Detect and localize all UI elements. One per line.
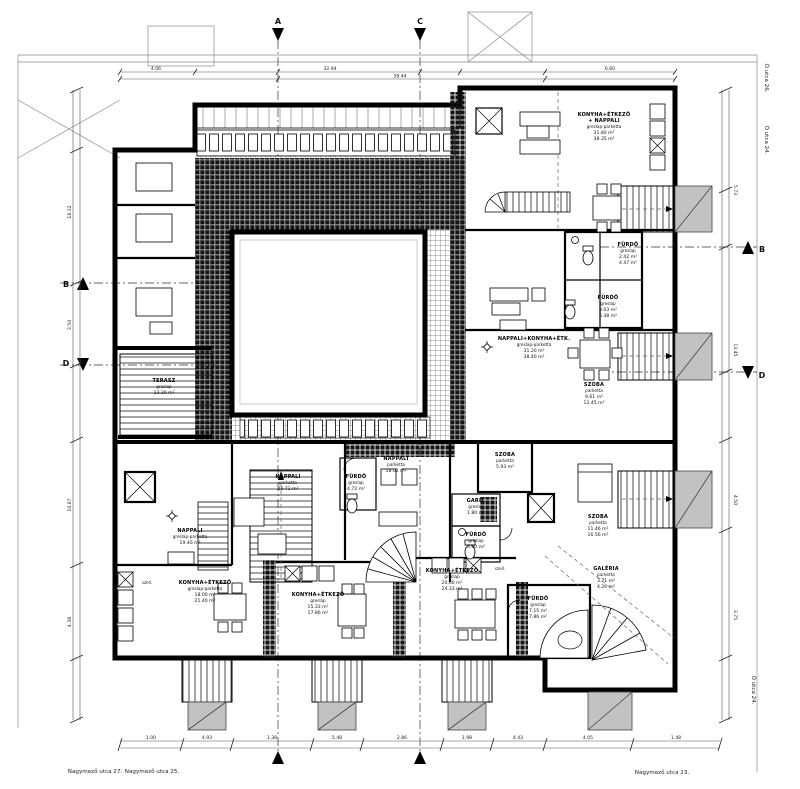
- svg-text:KONYHA+ÉTKEZŐ: KONYHA+ÉTKEZŐ: [426, 566, 479, 574]
- room-label-gard: GARD. greslap 1.80 m²: [467, 498, 486, 516]
- stair-right-1: [618, 186, 675, 232]
- louver-row-top: [197, 130, 455, 156]
- section-marker-a: A: [272, 17, 284, 41]
- dim-value: 1.98: [462, 735, 472, 741]
- corner-bathtub: [540, 610, 588, 658]
- room-label-nappali-konyha: NAPPALI+KONYHA+ÉTK. greslap-parketta 31.…: [498, 334, 570, 360]
- section-marker-d-right: D: [742, 366, 766, 380]
- svg-text:2.42 m²: 2.42 m²: [619, 254, 637, 260]
- section-marker-d-left: D: [63, 358, 89, 371]
- svg-text:31.20 m²: 31.20 m²: [524, 348, 545, 354]
- svg-text:parketta: parketta: [597, 572, 615, 577]
- street-label-o-utca-24-lower: Ó utca 24.: [750, 675, 757, 704]
- svg-text:FÜRDŐ: FÜRDŐ: [346, 473, 367, 480]
- dim-value: 5.48: [332, 735, 342, 741]
- dim-value: 3.75: [732, 610, 738, 620]
- svg-text:KONYHA+ÉTKEZŐ: KONYHA+ÉTKEZŐ: [578, 110, 631, 118]
- neighbour-roof-plan: [148, 26, 214, 66]
- svg-text:5.38 m²: 5.38 m²: [599, 313, 617, 319]
- svg-text:3.71 m²: 3.71 m²: [597, 578, 615, 584]
- room-label-furdo1: FÜRDŐ greslap 2.42 m² 4.47 m²: [618, 241, 639, 266]
- svg-text:7.15 m²: 7.15 m²: [529, 608, 547, 614]
- party-wall: [516, 582, 528, 658]
- stair-top-fan: [485, 192, 505, 212]
- section-label-c: C: [417, 17, 423, 26]
- svg-text:parketta: parketta: [279, 480, 297, 485]
- survey-point: [481, 341, 493, 353]
- dim-value: 1.00: [146, 735, 156, 741]
- toilet: [347, 494, 357, 513]
- svg-text:9.61 m²: 9.61 m²: [585, 394, 603, 400]
- kitchen-counter: [285, 566, 334, 581]
- dimension-chain-right: 5.73 13.45 4.50 3.75: [719, 87, 738, 723]
- room-label-furdo4: FÜRDŐ greslap 7.15 m² 7.86 m²: [528, 595, 549, 620]
- elevator-shaft: [528, 494, 554, 522]
- svg-text:greslap-parketta: greslap-parketta: [188, 586, 223, 591]
- dim-value: 4.43: [513, 735, 523, 741]
- room-label-furdo3: FÜRDŐ greslap 3.60 m²: [466, 531, 487, 550]
- svg-text:parketta: parketta: [387, 462, 405, 467]
- svg-text:26.72 m²: 26.72 m²: [278, 486, 299, 492]
- svg-text:FÜRDŐ: FÜRDŐ: [528, 595, 549, 602]
- dining-table: [593, 184, 621, 232]
- svg-text:greslap: greslap: [468, 538, 484, 543]
- svg-text:GALÉRIA: GALÉRIA: [593, 564, 619, 572]
- room-label-furdo5: FÜRDŐ greslap 4.72 m²: [346, 473, 367, 492]
- svg-text:greslap: greslap: [444, 574, 460, 579]
- dim-value: 6.60: [605, 66, 615, 72]
- lightwell-3: [442, 660, 492, 702]
- svg-text:KONYHA+ÉTKEZŐ: KONYHA+ÉTKEZŐ: [179, 578, 232, 586]
- svg-text:greslap-parketta: greslap-parketta: [587, 124, 622, 129]
- dim-value: 4.50: [732, 495, 738, 505]
- section-label-a: A: [275, 17, 282, 26]
- svg-text:16.56 m²: 16.56 m²: [588, 532, 609, 538]
- dim-value: 16.32: [67, 205, 73, 218]
- svg-text:1.80 m²: 1.80 m²: [467, 510, 485, 516]
- room-label-szoba1: SZOBA parketta 9.61 m² 12.45 m²: [584, 382, 605, 406]
- coffee-table: [527, 126, 549, 138]
- svg-text:4.47 m²: 4.47 m²: [619, 260, 637, 266]
- armchair: [532, 288, 545, 301]
- lightwell-1: [182, 660, 232, 702]
- bed: [136, 214, 172, 242]
- svg-text:NAPPALI+KONYHA+ÉTK.: NAPPALI+KONYHA+ÉTK.: [498, 334, 570, 342]
- svg-text:18.02 m²: 18.02 m²: [386, 468, 407, 474]
- survey-point: [166, 510, 178, 522]
- svg-text:D: D: [759, 371, 766, 380]
- svg-text:parketta: parketta: [585, 388, 603, 393]
- room-label-konyha3: KONYHA+ÉTKEZŐ greslap 20.60 m² 24.33 m²: [426, 566, 479, 592]
- svg-text:38.35 m²: 38.35 m²: [594, 136, 615, 142]
- svg-text:38.40 m²: 38.40 m²: [524, 354, 545, 360]
- svg-text:D: D: [63, 359, 70, 368]
- section-marker-b-right: B: [742, 241, 765, 254]
- dim-value: 1.48: [671, 735, 681, 741]
- sofa: [490, 288, 528, 301]
- room-label-nappali1: NAPPALI parketta 18.02 m²: [383, 456, 408, 474]
- svg-text:5.93 m²: 5.93 m²: [496, 464, 514, 470]
- room-label-szoba2: SZOBA parketta 5.93 m²: [495, 452, 515, 470]
- stair-fan-center: [366, 532, 416, 582]
- desk: [150, 322, 172, 334]
- svg-text:23.30 m²: 23.30 m²: [154, 390, 175, 396]
- dim-value: 4.05: [583, 735, 593, 741]
- stair-top-run: [505, 192, 570, 212]
- svg-text:3.60 m²: 3.60 m²: [467, 544, 485, 550]
- section-marker-c-bottom: [414, 751, 426, 764]
- sofa: [520, 140, 560, 154]
- dim-value: 1.38: [267, 735, 277, 741]
- sofa: [168, 552, 194, 564]
- neighbour-roof-lines: [18, 100, 120, 158]
- svg-text:greslap: greslap: [310, 598, 326, 603]
- dining-table: [455, 589, 496, 640]
- svg-text:17.86 m²: 17.86 m²: [308, 610, 329, 616]
- sofa: [379, 512, 417, 526]
- toilet: [583, 246, 593, 265]
- svg-text:greslap: greslap: [156, 384, 172, 389]
- louver-row-bottom: [240, 417, 430, 438]
- street-label-nagymezo-23: Nagymező utca 23.: [635, 770, 690, 776]
- dim-value: 4.93: [202, 735, 212, 741]
- vent-label: szell.: [142, 580, 152, 585]
- svg-text:3.03 m²: 3.03 m²: [599, 307, 617, 313]
- svg-text:FÜRDŐ: FÜRDŐ: [618, 241, 639, 248]
- svg-text:20.60 m²: 20.60 m²: [442, 580, 463, 586]
- svg-text:21.40 m²: 21.40 m²: [195, 598, 216, 604]
- svg-text:greslap: greslap: [468, 504, 484, 509]
- dim-value: 38.44: [393, 74, 406, 80]
- dim-value: 5.73: [732, 185, 738, 195]
- svg-text:greslap-parketta: greslap-parketta: [517, 342, 552, 347]
- svg-text:FÜRDŐ: FÜRDŐ: [466, 531, 487, 538]
- street-label-o-utca-24: Ó utca 24.: [763, 125, 770, 154]
- stair-right-2: [618, 333, 675, 380]
- toilet: [565, 300, 575, 319]
- section-marker-c: C: [414, 17, 426, 41]
- svg-text:FÜRDŐ: FÜRDŐ: [598, 294, 619, 301]
- svg-text:greslap-parketta: greslap-parketta: [173, 534, 208, 539]
- bed: [136, 163, 172, 191]
- vent-label: szell.: [495, 566, 505, 571]
- bed: [578, 464, 612, 502]
- svg-text:greslap: greslap: [348, 480, 364, 485]
- svg-text:KONYHA+ÉTKEZŐ: KONYHA+ÉTKEZŐ: [292, 590, 345, 598]
- svg-text:18.00 m²: 18.00 m²: [195, 592, 216, 598]
- svg-text:greslap: greslap: [530, 602, 546, 607]
- dim-value: 2.86: [397, 735, 407, 741]
- washbasin: [572, 237, 579, 244]
- sofa: [492, 303, 520, 315]
- bed: [234, 498, 264, 526]
- sofa: [258, 534, 286, 554]
- dim-value: 32.94: [323, 66, 336, 72]
- floor-plan-drawing: A C B D B D 4.06 32.94 6.60 3: [0, 0, 800, 789]
- dimension-chain-top: 4.06 32.94 6.60 38.44: [118, 66, 677, 82]
- svg-text:11.46 m²: 11.46 m²: [588, 526, 609, 532]
- svg-text:greslap: greslap: [600, 301, 616, 306]
- dim-value: 3.50: [67, 320, 73, 330]
- section-marker-a-bottom: [272, 751, 284, 764]
- street-label-o-utca-26: Ó utca 26.: [763, 63, 770, 92]
- room-label-furdo2: FÜRDŐ greslap 3.03 m² 5.38 m²: [598, 294, 619, 319]
- dim-value: 10.67: [67, 498, 73, 511]
- svg-text:31.80 m²: 31.80 m²: [594, 130, 615, 136]
- svg-text:15.33 m²: 15.33 m²: [308, 604, 329, 610]
- room-label-konyha-nappali: KONYHA+ÉTKEZŐ + NAPPALI greslap-parketta…: [578, 110, 631, 142]
- lightwell-2: [312, 660, 362, 702]
- bed: [136, 288, 172, 316]
- stair-fan-bottom-right: [592, 605, 646, 660]
- washbasin: [459, 529, 466, 536]
- svg-text:12.45 m²: 12.45 m²: [584, 400, 605, 406]
- svg-text:parketta: parketta: [496, 458, 514, 463]
- neighbour-hip-roof: [468, 12, 532, 62]
- sofa: [520, 112, 560, 126]
- svg-text:19.40 m²: 19.40 m²: [180, 540, 201, 546]
- floor-plan-sheet: A C B D B D 4.06 32.94 6.60 3: [0, 0, 800, 789]
- svg-text:B: B: [759, 245, 765, 254]
- dim-value: 13.45: [732, 343, 738, 356]
- svg-text:24.33 m²: 24.33 m²: [442, 586, 463, 592]
- dim-value: 4.38: [67, 617, 73, 627]
- core-wall: [450, 92, 466, 442]
- street-label-nagymezo-27: Nagymező utca 27.: [68, 769, 123, 775]
- svg-text:4.72 m²: 4.72 m²: [347, 486, 365, 492]
- room-label-szoba3: SZOBA parketta 11.46 m² 16.56 m²: [588, 514, 609, 538]
- kitchen-counter: [650, 104, 665, 170]
- svg-text:greslap: greslap: [620, 248, 636, 253]
- courtyard: [232, 232, 425, 415]
- svg-text:7.86 m²: 7.86 m²: [529, 614, 547, 620]
- svg-text:parketta: parketta: [589, 520, 607, 525]
- svg-text:4.26 m²: 4.26 m²: [597, 584, 615, 590]
- coffee-table: [500, 320, 526, 330]
- kitchen-counter: [118, 572, 133, 641]
- roof-shaft: [476, 108, 502, 134]
- room-label-konyha2: KONYHA+ÉTKEZŐ greslap 15.33 m² 17.86 m²: [292, 590, 345, 616]
- street-label-nagymezo-25: Nagymező utca 25.: [125, 769, 180, 775]
- dim-value: 4.06: [151, 66, 161, 72]
- svg-text:B: B: [63, 280, 69, 289]
- dimension-chain-left: 16.32 3.50 10.67 4.38: [67, 87, 83, 723]
- elevator-shaft: [125, 472, 155, 502]
- stair-right-3: [618, 471, 675, 528]
- atrium-roof: [195, 106, 465, 440]
- glass-roof-grid-top: [195, 158, 465, 230]
